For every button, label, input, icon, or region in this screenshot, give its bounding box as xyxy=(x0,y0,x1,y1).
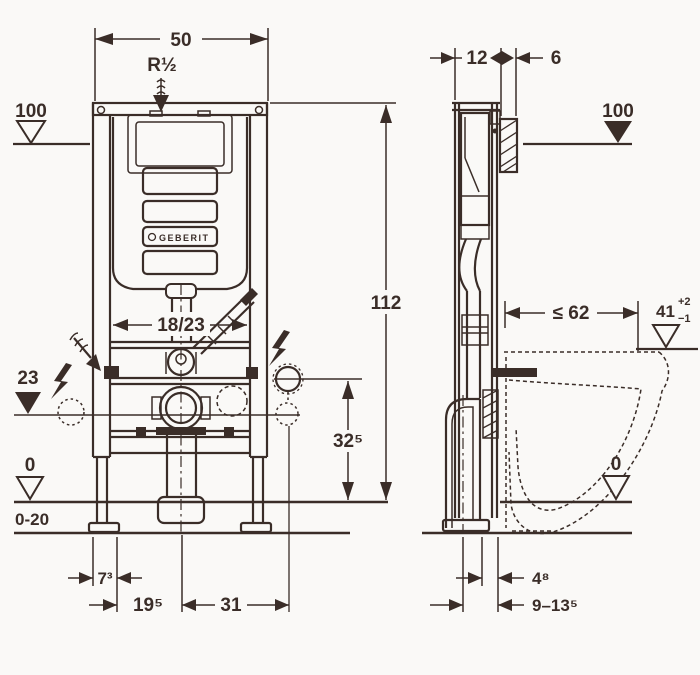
dim-bowl-depth: ≤ 62 xyxy=(505,300,638,351)
datum-23: 23 xyxy=(15,368,41,414)
ceramic-pan-outline xyxy=(504,352,668,533)
dim-50-label: 50 xyxy=(170,30,191,51)
datum-triangle-filled-icon xyxy=(15,392,41,414)
floor-buildup-label: 0-20 xyxy=(15,510,49,529)
datum-triangle-open-icon xyxy=(653,325,679,347)
concealed-cistern: GEBERIT xyxy=(113,111,247,289)
water-supply-arrow-icon xyxy=(70,333,101,371)
dim-le-62-label: ≤ 62 xyxy=(553,303,590,324)
dim-41-label: 41 xyxy=(656,302,675,321)
datum-23-label: 23 xyxy=(17,368,38,389)
dim-112-label: 112 xyxy=(371,293,402,314)
flush-plate-housing xyxy=(500,119,517,172)
lightning-icon xyxy=(51,363,72,399)
lightning-icon xyxy=(269,330,290,366)
dim-rim-height: 41 +2 −1 xyxy=(636,296,698,349)
knockout-circle-icon xyxy=(217,386,247,416)
datum-100-right-label: 100 xyxy=(602,101,634,122)
dim-4-8-label: 4⁸ xyxy=(532,569,550,588)
datum-triangle-filled-icon xyxy=(604,121,632,143)
datum-100-left: 100 xyxy=(13,101,90,144)
datum-triangle-open-icon xyxy=(17,121,45,143)
dim-socket-offset: 31 xyxy=(182,594,289,616)
dim-19-5-label: 19⁵ xyxy=(133,595,163,616)
dim-32-5-label: 32⁵ xyxy=(333,431,363,452)
dim-18-23-label: 18/23 xyxy=(157,315,205,336)
knockout-circle-icon xyxy=(58,399,84,425)
brand-logo-text: GEBERIT xyxy=(159,233,210,243)
adjustable-legs xyxy=(89,457,271,532)
frame-outline xyxy=(93,103,267,457)
datum-100-right: 100 xyxy=(523,101,634,144)
datum-0-left-label: 0 xyxy=(25,455,36,476)
dim-31-label: 31 xyxy=(220,595,242,616)
dim-frame-depth: 12 6 xyxy=(430,47,561,116)
datum-0-right-label: 0 xyxy=(611,454,622,475)
dim-9-13-5-label: 9–13⁵ xyxy=(532,596,578,615)
technical-drawing: GEBERIT xyxy=(0,0,700,675)
supply-thread-label: R½ xyxy=(147,55,177,76)
datum-triangle-open-icon xyxy=(17,477,43,499)
dim-41-tol-plus: +2 xyxy=(678,296,691,308)
datum-0-right: 0 xyxy=(603,454,629,499)
dim-7-3-label: 7³ xyxy=(97,569,112,588)
knockout-circle-icon xyxy=(276,403,298,425)
dim-12-label: 12 xyxy=(466,48,487,69)
datum-0-left: 0 0-20 xyxy=(15,455,49,529)
cistern-profile xyxy=(459,113,489,398)
geberit-logo: GEBERIT xyxy=(149,233,210,243)
wc-bracket xyxy=(491,368,537,377)
dim-socket-height: 32⁵ xyxy=(327,381,369,500)
dim-bolt-range: 9–13⁵ xyxy=(430,596,578,615)
water-supply-arrow-icon xyxy=(153,78,169,112)
threaded-rod xyxy=(483,390,498,438)
dim-frame-width: 50 xyxy=(95,26,268,101)
datum-100-left-label: 100 xyxy=(15,101,47,122)
drain-elbow xyxy=(446,395,480,533)
dim-41-tol-minus: −1 xyxy=(678,313,691,325)
dim-6-label: 6 xyxy=(551,48,562,69)
